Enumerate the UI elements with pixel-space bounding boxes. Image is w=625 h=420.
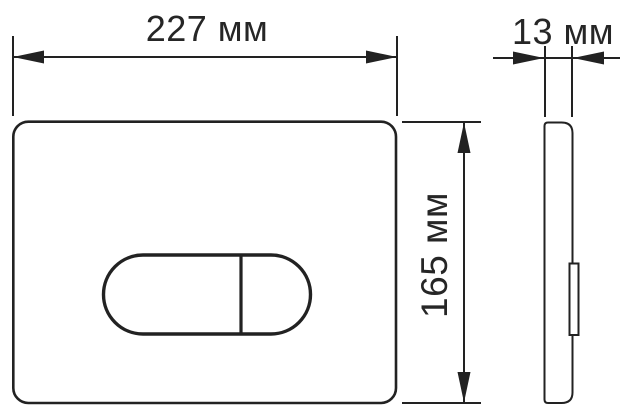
drawing-canvas: 227 мм 13 мм 1 xyxy=(0,0,625,420)
height-dimension: 165 мм xyxy=(402,122,481,403)
height-dimension-label: 165 мм xyxy=(414,192,455,318)
flush-button-pill xyxy=(104,255,311,334)
height-arrow-down-icon xyxy=(458,372,471,403)
flush-plate-technical-drawing: 227 мм 13 мм 1 xyxy=(0,0,625,420)
width-dimension: 227 мм xyxy=(13,8,397,116)
flush-plate-side-profile xyxy=(545,123,573,404)
depth-dimension-label: 13 мм xyxy=(512,11,614,52)
width-arrow-left-icon xyxy=(13,51,44,64)
width-dimension-label: 227 мм xyxy=(146,8,269,49)
flush-button-side-bump xyxy=(570,264,579,336)
width-arrow-right-icon xyxy=(366,51,397,64)
height-arrow-up-icon xyxy=(458,123,471,154)
front-view xyxy=(13,122,396,403)
depth-dimension: 13 мм xyxy=(493,11,620,117)
depth-arrow-right-icon xyxy=(573,52,604,65)
side-view xyxy=(545,123,579,404)
depth-arrow-left-icon xyxy=(513,52,544,65)
